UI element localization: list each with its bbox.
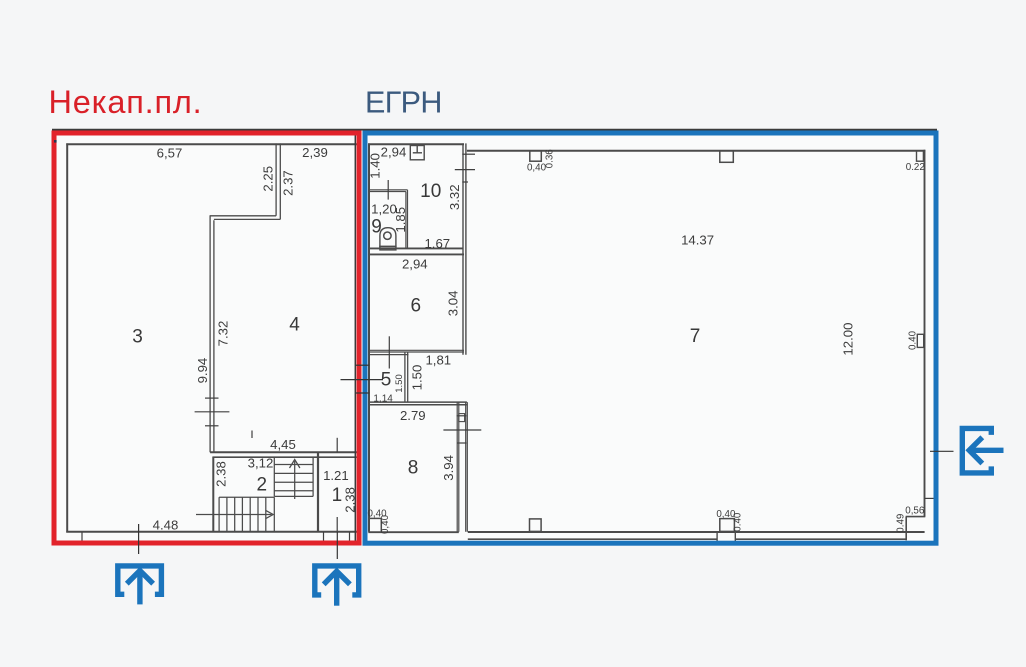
svg-text:14.37: 14.37: [681, 233, 714, 248]
svg-text:2,94: 2,94: [402, 257, 428, 272]
svg-text:0.36: 0.36: [545, 149, 556, 169]
svg-text:12.00: 12.00: [841, 323, 856, 356]
svg-text:Некап.пл.: Некап.пл.: [49, 84, 203, 120]
svg-text:1.40: 1.40: [368, 153, 383, 179]
svg-text:4,45: 4,45: [270, 437, 296, 452]
svg-text:ЕГРН: ЕГРН: [365, 86, 442, 120]
svg-text:0.40: 0.40: [732, 512, 743, 532]
svg-text:1,14: 1,14: [373, 394, 393, 405]
svg-text:7.32: 7.32: [215, 321, 230, 347]
svg-text:1.21: 1.21: [323, 468, 349, 483]
svg-text:1.50: 1.50: [410, 365, 425, 391]
svg-text:2.37: 2.37: [280, 170, 295, 196]
svg-text:2.25: 2.25: [261, 166, 276, 192]
svg-text:3.32: 3.32: [447, 184, 462, 210]
svg-text:6,57: 6,57: [157, 145, 183, 160]
svg-text:2.79: 2.79: [400, 408, 426, 423]
svg-text:10: 10: [420, 181, 441, 202]
svg-text:0,40: 0,40: [380, 514, 391, 534]
svg-text:1,81: 1,81: [425, 353, 451, 368]
svg-text:3.04: 3.04: [445, 291, 460, 317]
svg-text:6: 6: [411, 295, 422, 316]
svg-text:9.94: 9.94: [195, 358, 210, 384]
svg-text:1.50: 1.50: [394, 374, 405, 393]
svg-text:9: 9: [371, 216, 382, 237]
svg-text:1.67: 1.67: [424, 236, 450, 251]
svg-text:2: 2: [257, 475, 268, 496]
svg-text:4: 4: [289, 315, 300, 336]
svg-text:2,94: 2,94: [381, 144, 407, 159]
svg-text:3: 3: [132, 327, 143, 348]
svg-text:1.85: 1.85: [393, 207, 408, 233]
svg-text:0.22: 0.22: [906, 162, 925, 173]
svg-text:3,12: 3,12: [248, 456, 274, 471]
svg-text:0.40: 0.40: [907, 330, 918, 350]
svg-text:4.48: 4.48: [153, 518, 179, 533]
svg-text:0,56: 0,56: [905, 506, 925, 517]
svg-text:2,39: 2,39: [302, 145, 328, 160]
svg-text:8: 8: [408, 457, 419, 478]
svg-text:1: 1: [332, 485, 343, 506]
svg-text:3.94: 3.94: [441, 455, 456, 481]
svg-text:2.38: 2.38: [213, 461, 228, 487]
svg-text:7: 7: [690, 326, 701, 347]
